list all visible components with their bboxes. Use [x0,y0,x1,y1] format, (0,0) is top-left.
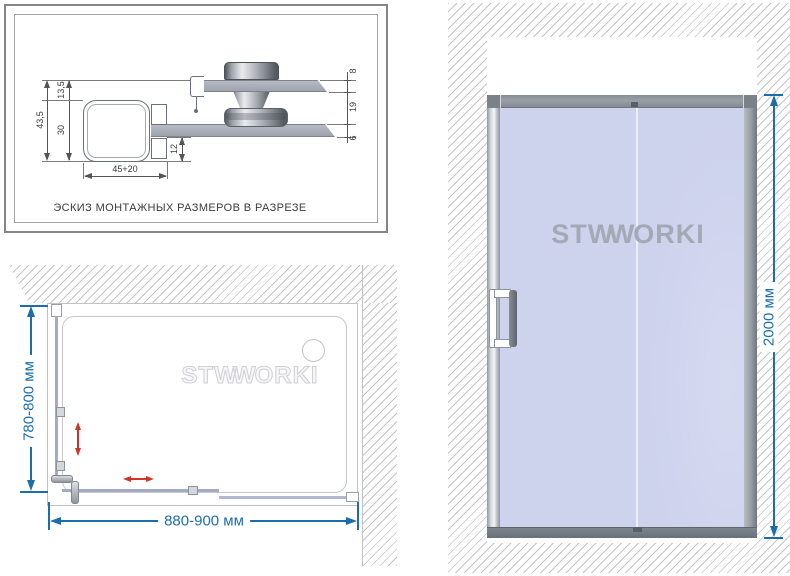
dim-line-total-height [47,82,48,159]
plan-side-glass [55,317,58,478]
height-dim-ext-bottom [764,537,783,539]
door-glass-right-pane [638,108,744,527]
guide-mark-bottom [633,527,642,532]
dim-label-door-glass: 8 [348,68,358,73]
dim-label-offset-bottom: 12 [169,144,179,154]
roller-mark-top [631,102,638,107]
width-dim-label: 880-900 мм [158,512,250,531]
dim-line-profile-width [85,176,166,177]
extension-line [167,162,168,179]
brand-mark-ww: WW [214,362,252,389]
plan-wall-top [3,265,397,303]
brand-watermark-plan: STWWORKI [150,362,350,390]
wall-profile-inner-line [87,104,146,158]
plan-wall-right [362,303,397,566]
arrowhead [44,153,50,161]
arrowhead [179,154,185,162]
height-dim-arrow-bottom [770,526,778,537]
depth-dim-label: 780-800 мм [20,355,39,447]
plan-side-handle [51,475,73,483]
width-dim-arrow-left [50,517,61,525]
extension-line [329,92,356,93]
door-handle-grip [509,290,517,347]
dim-tick [344,124,351,125]
arrowhead [66,153,72,161]
width-dim-ext-right [357,502,359,530]
depth-dim-arrow-bottom [27,480,35,491]
door-panel-divider [636,108,638,527]
arrowhead [44,80,50,88]
slide-arrow-vertical [77,429,79,449]
dim-label-profile-height: 30 [56,125,66,135]
depth-dim-ext-bottom [20,491,48,493]
door-glass-left-pane [500,108,636,527]
profile-glass-channel-bottom [151,138,167,159]
shower-enclosure-drawing: 43,5 13,5 30 12 45+20 8 19 6 ЭСКИЗ МОНТА… [0,0,790,576]
height-dim-label: 2000 мм [760,282,779,352]
slide-arrow-horizontal [130,478,147,480]
arrowhead [84,173,92,179]
depth-dim-arrow-top [27,306,35,317]
plan-door-handle [71,481,79,504]
plan-wall-profile-top [51,304,62,317]
brand-part: ORKI [255,362,319,389]
height-dim-line-upper [773,103,775,283]
drain-circle [302,339,325,362]
slide-arrowhead [123,476,131,482]
door-glass-section-bar [192,80,327,92]
brand-part: ST [551,219,588,249]
door-right-profile [744,108,757,527]
door-top-rail-cap-right [743,95,757,108]
door-top-rail-cap-left [487,95,501,108]
brand-part: ORKI [633,219,705,249]
extension-line [327,124,356,125]
dim-label-profile-width: 45+20 [112,164,137,174]
profile-glass-channel-top [151,104,167,125]
dim-tick [344,80,351,81]
glass-clip-bracket [190,76,204,97]
slide-arrowhead [75,448,81,456]
brand-mark-ww: WW [588,219,630,249]
slide-arrowhead [75,422,81,430]
dim-line-profile-height [69,101,70,160]
width-dim-arrow-right [346,517,357,525]
dim-label-fixed-glass: 6 [348,135,358,140]
door-bottom-rail [487,527,757,538]
dim-label-total-height: 43,5 [35,111,45,129]
door-top-rail [487,95,757,108]
roller-adjust-knob [224,62,279,80]
height-dim-line-lower [773,351,775,529]
roller-pulley-groove [226,113,286,120]
slide-arrowhead [146,476,154,482]
extension-line [42,100,83,101]
plan-glass-clip [56,407,65,417]
dim-label-offset-top: 13,5 [56,81,66,99]
arrowhead [159,173,167,179]
arrowhead [179,137,185,145]
brand-part: ST [181,362,214,389]
dim-label-glass-gap: 19 [348,102,358,112]
height-dim-arrow-top [770,95,778,106]
brand-logo-front: STWWORKI [528,219,728,250]
dim-tick [344,92,351,93]
plan-wall-profile-right [346,492,359,502]
plan-glass-clip [56,461,65,471]
plan-glass-clip [188,486,198,495]
wall-profile-section [83,100,150,162]
sketch-caption: ЭСКИЗ МОНТАЖНЫХ РАЗМЕРОВ В РАЗРЕЗЕ [30,202,330,214]
plan-wall-right-edge [362,265,363,566]
arrowhead [66,80,72,88]
width-dim-ext-left [48,502,50,530]
plan-fixed-glass [219,496,348,499]
clip-pin-dot [194,109,198,113]
